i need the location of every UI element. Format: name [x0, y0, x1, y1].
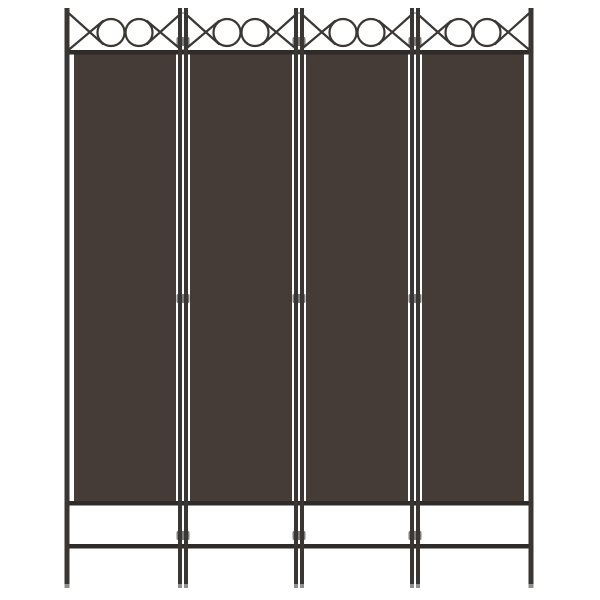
bottom-rail: [297, 501, 418, 506]
ring-ornament: [98, 19, 125, 46]
ring-ornament: [358, 19, 385, 46]
frame-post: [300, 8, 304, 588]
bottom-rail: [413, 501, 534, 506]
fabric-panel: [422, 54, 524, 502]
ring-ornament: [330, 19, 357, 46]
leg-tip: [294, 584, 298, 588]
frame-post: [410, 8, 414, 588]
frame-post: [184, 8, 188, 588]
ring-ornament: [474, 19, 501, 46]
room-divider-illustration: [0, 0, 600, 600]
frame-post: [529, 8, 534, 588]
room-divider-product-image: [0, 0, 600, 600]
top-rail: [181, 50, 302, 55]
ring-ornament: [242, 19, 269, 46]
top-rail: [413, 50, 534, 55]
frame-post: [65, 8, 70, 588]
leg-tip: [416, 584, 420, 588]
leg-tip: [300, 584, 304, 588]
fabric-panel: [306, 54, 408, 502]
leg-tip: [529, 584, 534, 588]
ring-ornament: [126, 19, 153, 46]
frame-post: [294, 8, 298, 588]
frame-post: [178, 8, 182, 588]
foot-rail: [297, 544, 418, 549]
foot-rail: [181, 544, 302, 549]
top-rail: [65, 50, 186, 55]
leg-tip: [178, 584, 182, 588]
leg-tip: [65, 584, 70, 588]
fabric-panel: [74, 54, 176, 502]
foot-rail: [413, 544, 534, 549]
frame-post: [416, 8, 420, 588]
fabric-panel: [190, 54, 292, 502]
bottom-rail: [181, 501, 302, 506]
foot-rail: [65, 544, 186, 549]
leg-tip: [184, 584, 188, 588]
ring-ornament: [214, 19, 241, 46]
top-rail: [297, 50, 418, 55]
ring-ornament: [446, 19, 473, 46]
bottom-rail: [65, 501, 186, 506]
leg-tip: [410, 584, 414, 588]
